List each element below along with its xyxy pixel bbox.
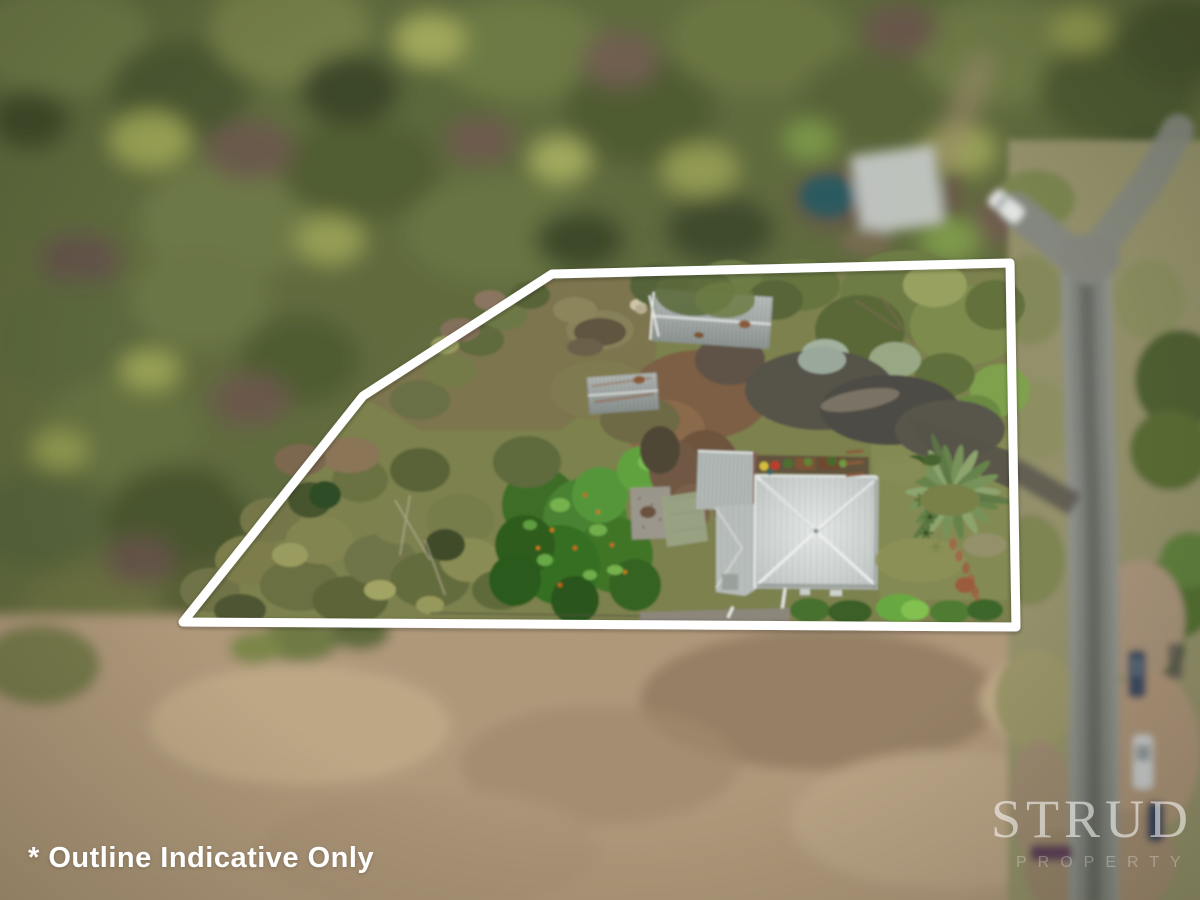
parked-car-purple — [1030, 845, 1072, 861]
shed-small — [587, 373, 659, 415]
trailer — [1168, 643, 1183, 679]
aerial-photo: * Outline Indicative Only STRUD PROPERTY — [0, 0, 1200, 900]
pool-tarp — [800, 175, 856, 217]
silver-bush — [798, 346, 846, 374]
parked-car — [1133, 735, 1153, 789]
main-hip-roof — [755, 475, 879, 589]
parked-car — [1147, 802, 1164, 842]
aerial-photo-canvas — [0, 0, 1200, 900]
garage-roof — [696, 450, 757, 511]
parked-car — [1128, 650, 1146, 698]
outline-disclaimer-text: * Outline Indicative Only — [28, 844, 374, 873]
olive-tree — [493, 436, 561, 488]
